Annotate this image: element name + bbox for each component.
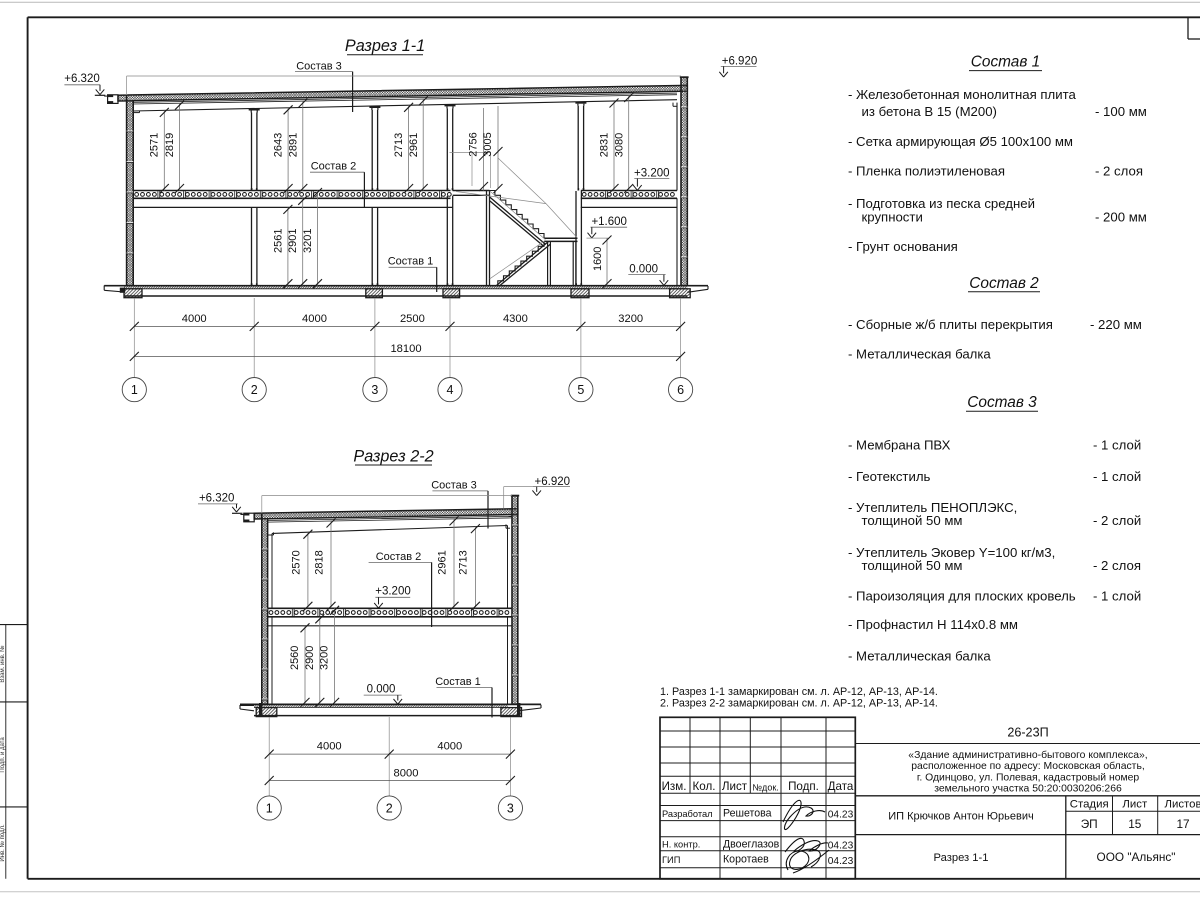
- svg-text:расположенное по адресу: Моско: расположенное по адресу: Московская обла…: [911, 760, 1145, 772]
- svg-text:2961: 2961: [436, 550, 448, 574]
- svg-text:- 1 слой: - 1 слой: [1093, 437, 1141, 452]
- svg-text:4000: 4000: [317, 741, 342, 753]
- svg-text:Состав 1: Состав 1: [971, 54, 1040, 71]
- svg-text:- Железобетонная монолитная п: - Железобетонная монолитная плита: [848, 87, 1077, 102]
- svg-text:+6.320: +6.320: [199, 493, 235, 505]
- svg-text:2831: 2831: [598, 133, 610, 157]
- svg-text:- Геотекстиль: - Геотекстиль: [848, 469, 931, 484]
- svg-text:2713: 2713: [458, 550, 470, 574]
- svg-text:- Сборные ж/б плиты перекрытия: - Сборные ж/б плиты перекрытия: [848, 317, 1053, 332]
- svg-text:- 1 слой: - 1 слой: [1093, 469, 1141, 484]
- svg-text:- 100 мм: - 100 мм: [1095, 104, 1147, 119]
- svg-text:2570: 2570: [291, 550, 303, 574]
- svg-text:Двоеглазов: Двоеглазов: [723, 838, 780, 850]
- svg-text:2. Разрез 2-2 замаркирован см.: 2. Разрез 2-2 замаркирован см. л. АР-12,…: [660, 698, 938, 710]
- svg-text:Дата: Дата: [828, 780, 854, 793]
- svg-text:- Грунт основания: - Грунт основания: [848, 239, 958, 254]
- svg-text:5: 5: [577, 383, 584, 397]
- svg-text:из бетона В 15 (М200): из бетона В 15 (М200): [862, 104, 997, 119]
- svg-text:3200: 3200: [319, 646, 331, 670]
- svg-text:4000: 4000: [437, 741, 462, 753]
- svg-text:«Здание административно-бытово: «Здание административно-бытового комплек…: [908, 749, 1147, 761]
- svg-text:2900: 2900: [304, 646, 316, 670]
- svg-text:ООО "Альянс": ООО "Альянс": [1097, 850, 1176, 864]
- svg-text:1: 1: [131, 383, 138, 397]
- svg-text:Подп.: Подп.: [788, 780, 819, 793]
- svg-text:+1.600: +1.600: [591, 216, 627, 228]
- svg-text:- Пленка полиэтиленовая: - Пленка полиэтиленовая: [848, 163, 1005, 178]
- svg-text:- Пароизоляция для плоских кро: - Пароизоляция для плоских кровель: [848, 588, 1076, 603]
- svg-text:земельного участка 50:20:00302: земельного участка 50:20:0030206:266: [934, 784, 1122, 795]
- svg-text:Листов: Листов: [1164, 799, 1200, 811]
- svg-text:крупности: крупности: [862, 210, 923, 225]
- svg-text:+6.920: +6.920: [722, 56, 758, 68]
- svg-text:4: 4: [447, 383, 454, 397]
- svg-text:ИП Крючков Антон Юрьевич: ИП Крючков Антон Юрьевич: [888, 810, 1033, 822]
- svg-text:№док.: №док.: [752, 783, 778, 793]
- svg-text:Состав 2: Состав 2: [311, 161, 357, 173]
- svg-text:3: 3: [507, 801, 514, 815]
- svg-text:Состав 1: Состав 1: [435, 676, 481, 688]
- svg-text:2560: 2560: [289, 646, 301, 670]
- svg-text:- Металлическая балка: - Металлическая балка: [848, 346, 991, 361]
- svg-text:1: 1: [266, 801, 273, 815]
- svg-text:- 2 слоя: - 2 слоя: [1095, 163, 1143, 178]
- svg-text:2: 2: [386, 801, 393, 815]
- svg-text:8000: 8000: [394, 767, 419, 779]
- svg-text:4000: 4000: [302, 313, 327, 325]
- svg-text:Н. контр.: Н. контр.: [662, 840, 700, 850]
- svg-text:Изм.: Изм.: [662, 780, 687, 793]
- svg-text:Разработал: Разработал: [662, 809, 713, 819]
- svg-text:04.23: 04.23: [828, 856, 854, 867]
- svg-text:Разрез 1-1: Разрез 1-1: [934, 852, 989, 864]
- svg-text:17: 17: [1176, 817, 1189, 831]
- svg-text:- 200 мм: - 200 мм: [1095, 210, 1147, 225]
- svg-text:2961: 2961: [408, 133, 420, 157]
- svg-text:18100: 18100: [390, 343, 421, 355]
- svg-text:2713: 2713: [393, 133, 405, 157]
- svg-text:- 2 слоя: - 2 слоя: [1093, 558, 1141, 573]
- svg-text:Состав 1: Состав 1: [388, 256, 434, 268]
- svg-text:15: 15: [1128, 817, 1142, 831]
- svg-text:Стадия: Стадия: [1070, 799, 1109, 811]
- svg-text:Решетова: Решетова: [723, 807, 772, 819]
- svg-text:3: 3: [371, 383, 378, 397]
- svg-text:г. Одинцово, ул. Полевая, када: г. Одинцово, ул. Полевая, кадастровый но…: [917, 772, 1140, 783]
- svg-text:Разрез 2-2: Разрез 2-2: [353, 447, 433, 465]
- svg-text:Состав 2: Состав 2: [969, 275, 1039, 292]
- svg-text:1. Разрез 1-1 замаркирован см.: 1. Разрез 1-1 замаркирован см. л. АР-12,…: [660, 686, 938, 698]
- svg-text:0.000: 0.000: [367, 683, 396, 695]
- svg-text:26-23П: 26-23П: [1007, 726, 1048, 740]
- svg-text:- Мембрана ПВХ: - Мембрана ПВХ: [848, 437, 951, 452]
- svg-text:толщиной 50 мм: толщиной 50 мм: [862, 513, 963, 528]
- svg-text:2500: 2500: [400, 313, 425, 325]
- svg-text:- 1 слой: - 1 слой: [1093, 588, 1141, 603]
- svg-text:Лист: Лист: [1122, 799, 1148, 811]
- svg-text:Лист: Лист: [722, 780, 748, 793]
- svg-text:2818: 2818: [314, 550, 326, 574]
- svg-text:- 2 слой: - 2 слой: [1093, 513, 1141, 528]
- svg-text:04.23: 04.23: [828, 810, 854, 821]
- svg-text:+3.200: +3.200: [375, 586, 411, 598]
- svg-text:толщиной 50 мм: толщиной 50 мм: [862, 558, 963, 573]
- svg-text:- Профнастил Н 114x0.8 мм: - Профнастил Н 114x0.8 мм: [848, 617, 1018, 632]
- svg-text:3080: 3080: [614, 133, 626, 157]
- svg-text:3005: 3005: [482, 132, 494, 156]
- svg-text:0.000: 0.000: [629, 263, 658, 275]
- svg-text:4300: 4300: [503, 313, 528, 325]
- svg-text:Состав 3: Состав 3: [296, 61, 342, 73]
- svg-text:Состав 3: Состав 3: [431, 479, 477, 491]
- svg-text:Подп. и дата: Подп. и дата: [0, 737, 6, 773]
- svg-text:Разрез 1-1: Разрез 1-1: [345, 37, 425, 55]
- svg-text:Состав 2: Состав 2: [376, 551, 422, 563]
- svg-text:2901: 2901: [287, 228, 299, 252]
- svg-text:4000: 4000: [182, 313, 207, 325]
- svg-text:2819: 2819: [164, 133, 176, 157]
- svg-text:2: 2: [251, 383, 258, 397]
- svg-text:Состав 3: Состав 3: [967, 394, 1037, 411]
- svg-text:Инв. № подл.: Инв. № подл.: [0, 824, 6, 862]
- svg-text:+3.200: +3.200: [634, 167, 670, 179]
- svg-text:ГИП: ГИП: [662, 855, 680, 865]
- svg-text:2571: 2571: [149, 133, 161, 157]
- svg-text:2561: 2561: [272, 228, 284, 252]
- svg-text:- Металлическая балка: - Металлическая балка: [848, 649, 991, 664]
- svg-text:2643: 2643: [273, 133, 285, 157]
- svg-text:- Сетка армирующая Ø5 100x100: - Сетка армирующая Ø5 100x100 мм: [848, 134, 1073, 149]
- svg-text:1600: 1600: [592, 247, 604, 271]
- svg-text:2891: 2891: [287, 133, 299, 157]
- svg-text:6: 6: [677, 383, 684, 397]
- svg-text:3201: 3201: [302, 228, 314, 252]
- svg-text:Кол.: Кол.: [693, 780, 716, 793]
- svg-text:04.23: 04.23: [828, 841, 854, 852]
- svg-text:Взам. инв. №: Взам. инв. №: [0, 645, 6, 682]
- svg-text:- 220 мм: - 220 мм: [1090, 317, 1142, 332]
- svg-text:2756: 2756: [468, 132, 480, 156]
- svg-text:3200: 3200: [618, 313, 643, 325]
- svg-text:Коротаев: Коротаев: [723, 854, 769, 866]
- svg-text:ЭП: ЭП: [1081, 817, 1098, 831]
- svg-text:+6.320: +6.320: [64, 73, 100, 85]
